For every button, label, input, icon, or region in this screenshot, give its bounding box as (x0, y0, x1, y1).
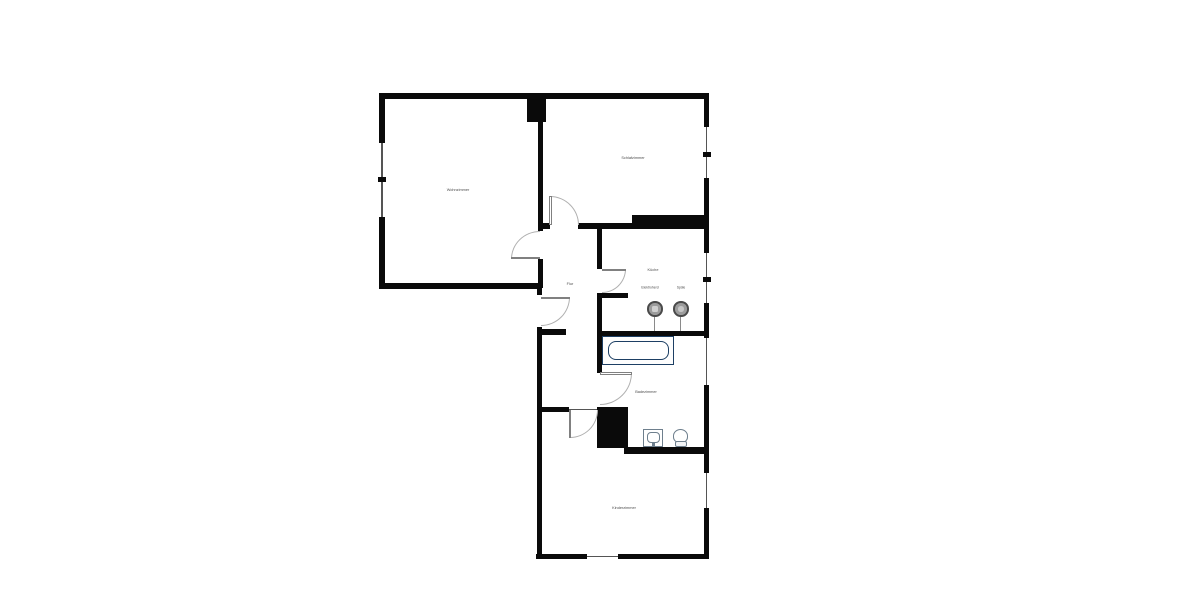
wall-bottom-left (536, 554, 587, 560)
badezimmer-window (706, 338, 708, 385)
kinderzimmer-window (706, 473, 708, 508)
wall-left-upper (379, 93, 385, 143)
toilet-base (675, 441, 687, 447)
wall-kueche-stub (597, 293, 628, 298)
kueche-door-leaf (602, 269, 626, 272)
kinderzimmer-door-leaf (569, 410, 572, 438)
fixture-label-elektroherd: Elektroherd (641, 286, 658, 289)
wall-hall-kinder (537, 407, 569, 412)
fixture-label-spuele: Spüle (677, 286, 686, 289)
badezimmer-door-arc (600, 373, 632, 405)
wohnzimmer-door-arc (511, 231, 540, 259)
window-tick-1 (703, 152, 711, 157)
badezimmer-door-leaf (600, 372, 632, 375)
window-tick-0 (378, 177, 386, 182)
room-label-schlafzimmer: Schlafzimmer (621, 156, 644, 160)
schlafzimmer-door-leaf (549, 196, 552, 225)
wall-left-lower (379, 217, 385, 288)
wall-right-schlaf-lower (704, 178, 710, 253)
wall-flur-stub (540, 329, 566, 336)
room-label-kueche: Küche (648, 268, 659, 272)
bathtub-basin (608, 341, 669, 360)
wall-schlaf-bottom-2 (578, 223, 632, 229)
wall-wohnzimmer-right-2 (538, 259, 543, 288)
wall-bad-bottom (624, 447, 709, 454)
schlafzimmer-door-arc (550, 196, 579, 225)
wall-kueche-left-upper (597, 225, 602, 269)
stove-leader (654, 317, 655, 331)
wall-chimney (527, 95, 546, 122)
kitchen-sink-center (678, 306, 684, 312)
room-label-flur: Flur (566, 282, 573, 286)
kinderzimmer-bottom-window (587, 556, 618, 558)
wall-wohnzimmer-bottom (379, 283, 542, 289)
kinderzimmer-door-arc (570, 410, 598, 438)
stove-center (652, 306, 658, 312)
wall-right-schlaf-upper (704, 93, 710, 127)
wall-lower-left-lower (537, 327, 542, 559)
entrance-door-arc (541, 297, 570, 326)
wall-shaft-block (597, 407, 628, 448)
room-label-badezimmer: Badezimmer (635, 390, 657, 394)
wall-right-bad-lower (704, 385, 710, 473)
wall-bottom-right (618, 554, 709, 560)
kueche-door-arc (602, 269, 626, 293)
washbasin-tap (652, 442, 655, 447)
entrance-door-leaf (541, 297, 570, 300)
kitchen-sink-leader (680, 317, 681, 331)
window-tick-2 (703, 277, 711, 282)
floor-plan: WohnzimmerSchlafzimmerKücheFlurBadezimme… (0, 0, 1200, 600)
room-label-wohnzimmer: Wohnzimmer (447, 188, 470, 192)
room-label-kinderzimmer: Kinderzimmer (612, 506, 636, 510)
washbasin-bowl (647, 432, 660, 443)
wall-schlaf-thick-block (632, 215, 704, 229)
wohnzimmer-door-leaf (511, 257, 540, 260)
wall-right-kinder-lower (704, 508, 710, 559)
